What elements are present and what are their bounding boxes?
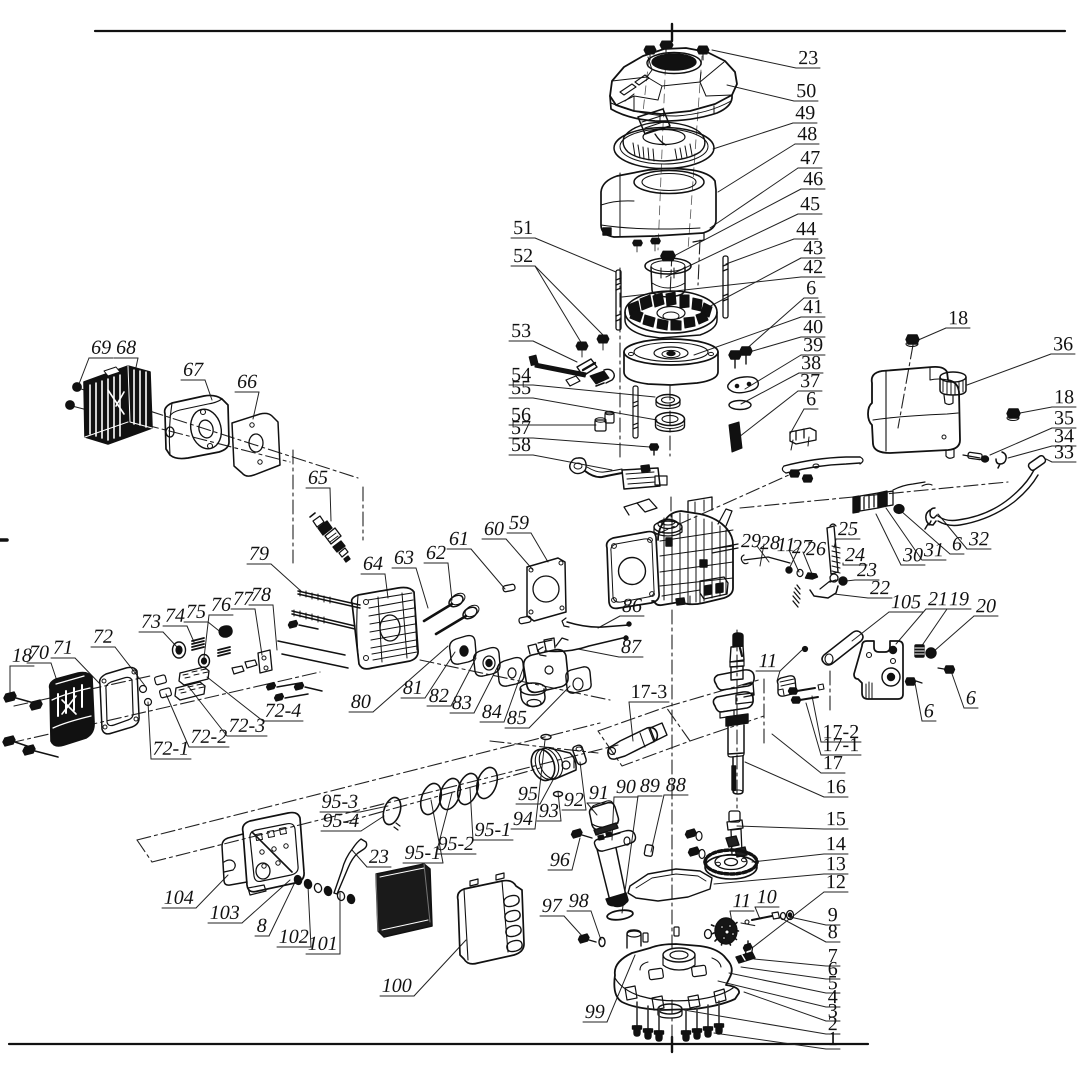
svg-text:31: 31 bbox=[923, 539, 944, 561]
svg-text:69: 69 bbox=[91, 337, 111, 359]
svg-text:83: 83 bbox=[452, 692, 472, 714]
svg-text:29: 29 bbox=[741, 530, 761, 552]
svg-text:61: 61 bbox=[449, 528, 469, 550]
svg-text:14: 14 bbox=[826, 833, 846, 855]
svg-text:62: 62 bbox=[426, 542, 446, 564]
svg-text:96: 96 bbox=[550, 849, 570, 871]
svg-text:10: 10 bbox=[757, 886, 777, 908]
svg-text:102: 102 bbox=[279, 926, 309, 948]
svg-text:23: 23 bbox=[369, 846, 389, 868]
svg-text:66: 66 bbox=[237, 371, 257, 393]
svg-text:93: 93 bbox=[539, 800, 559, 822]
svg-text:17-3: 17-3 bbox=[631, 681, 668, 703]
svg-text:95: 95 bbox=[518, 783, 538, 805]
svg-text:30: 30 bbox=[902, 544, 923, 566]
svg-text:72-4: 72-4 bbox=[265, 700, 302, 722]
svg-text:84: 84 bbox=[482, 701, 502, 723]
svg-text:89: 89 bbox=[640, 775, 660, 797]
svg-text:36: 36 bbox=[1053, 333, 1073, 355]
svg-text:98: 98 bbox=[569, 890, 589, 912]
svg-text:70: 70 bbox=[29, 642, 49, 664]
svg-text:81: 81 bbox=[403, 677, 423, 699]
svg-text:11: 11 bbox=[733, 890, 752, 912]
svg-text:72: 72 bbox=[93, 626, 113, 648]
svg-text:33: 33 bbox=[1054, 441, 1074, 463]
svg-text:18: 18 bbox=[1054, 386, 1074, 408]
svg-text:6: 6 bbox=[924, 700, 934, 722]
svg-text:25: 25 bbox=[838, 518, 858, 540]
svg-text:105: 105 bbox=[891, 591, 921, 613]
svg-text:22: 22 bbox=[870, 577, 890, 599]
svg-text:55: 55 bbox=[511, 377, 531, 399]
svg-text:65: 65 bbox=[308, 467, 328, 489]
svg-text:32: 32 bbox=[968, 528, 989, 550]
svg-text:100: 100 bbox=[382, 975, 412, 997]
svg-text:45: 45 bbox=[800, 193, 820, 215]
svg-text:6: 6 bbox=[952, 533, 962, 555]
svg-text:23: 23 bbox=[798, 47, 818, 69]
svg-text:8: 8 bbox=[828, 921, 838, 943]
svg-text:91: 91 bbox=[589, 782, 609, 804]
svg-text:48: 48 bbox=[797, 123, 817, 145]
svg-text:75: 75 bbox=[186, 601, 206, 623]
svg-text:42: 42 bbox=[803, 256, 823, 278]
svg-text:73: 73 bbox=[141, 611, 161, 633]
svg-text:85: 85 bbox=[507, 707, 527, 729]
svg-text:49: 49 bbox=[795, 102, 815, 124]
svg-text:15: 15 bbox=[826, 808, 846, 830]
svg-text:50: 50 bbox=[796, 80, 816, 102]
svg-text:63: 63 bbox=[394, 547, 414, 569]
svg-text:94: 94 bbox=[513, 808, 533, 830]
svg-text:72-1: 72-1 bbox=[153, 738, 190, 760]
svg-text:95-1: 95-1 bbox=[475, 819, 512, 841]
svg-text:92: 92 bbox=[564, 789, 584, 811]
svg-text:103: 103 bbox=[210, 902, 240, 924]
svg-text:95-2: 95-2 bbox=[437, 833, 474, 855]
svg-text:80: 80 bbox=[351, 691, 371, 713]
svg-text:59: 59 bbox=[509, 512, 529, 534]
svg-text:90: 90 bbox=[616, 776, 636, 798]
svg-text:21: 21 bbox=[928, 588, 948, 610]
svg-text:18: 18 bbox=[948, 307, 968, 329]
svg-text:72-2: 72-2 bbox=[191, 726, 228, 748]
svg-text:12: 12 bbox=[826, 871, 846, 893]
svg-text:82: 82 bbox=[429, 685, 449, 707]
svg-text:8: 8 bbox=[257, 915, 267, 937]
svg-text:11: 11 bbox=[759, 650, 778, 672]
svg-text:6: 6 bbox=[806, 388, 816, 410]
svg-text:6: 6 bbox=[966, 687, 976, 709]
svg-text:101: 101 bbox=[308, 933, 338, 955]
svg-text:20: 20 bbox=[976, 595, 996, 617]
svg-text:95-4: 95-4 bbox=[323, 810, 360, 832]
svg-text:88: 88 bbox=[666, 774, 686, 796]
svg-text:46: 46 bbox=[803, 168, 823, 190]
svg-text:17: 17 bbox=[823, 752, 843, 774]
svg-text:51: 51 bbox=[513, 217, 533, 239]
svg-text:104: 104 bbox=[164, 887, 194, 909]
svg-text:52: 52 bbox=[513, 245, 533, 267]
svg-text:97: 97 bbox=[542, 895, 563, 917]
svg-text:1: 1 bbox=[828, 1028, 838, 1050]
svg-text:26: 26 bbox=[806, 538, 826, 560]
svg-text:95-1: 95-1 bbox=[404, 842, 441, 864]
svg-text:19: 19 bbox=[949, 588, 969, 610]
svg-text:74: 74 bbox=[165, 605, 185, 627]
svg-text:68: 68 bbox=[116, 337, 136, 359]
svg-text:99: 99 bbox=[585, 1001, 605, 1023]
svg-text:79: 79 bbox=[249, 543, 269, 565]
svg-text:53: 53 bbox=[511, 320, 531, 342]
svg-text:60: 60 bbox=[484, 518, 504, 540]
svg-text:67: 67 bbox=[183, 359, 204, 381]
svg-text:41: 41 bbox=[803, 296, 823, 318]
svg-text:64: 64 bbox=[363, 553, 383, 575]
svg-text:58: 58 bbox=[511, 434, 531, 456]
svg-text:72-3: 72-3 bbox=[229, 715, 266, 737]
svg-text:76: 76 bbox=[211, 594, 231, 616]
svg-text:78: 78 bbox=[251, 584, 271, 606]
svg-text:16: 16 bbox=[826, 776, 846, 798]
svg-text:47: 47 bbox=[800, 147, 820, 169]
svg-text:71: 71 bbox=[53, 637, 73, 659]
